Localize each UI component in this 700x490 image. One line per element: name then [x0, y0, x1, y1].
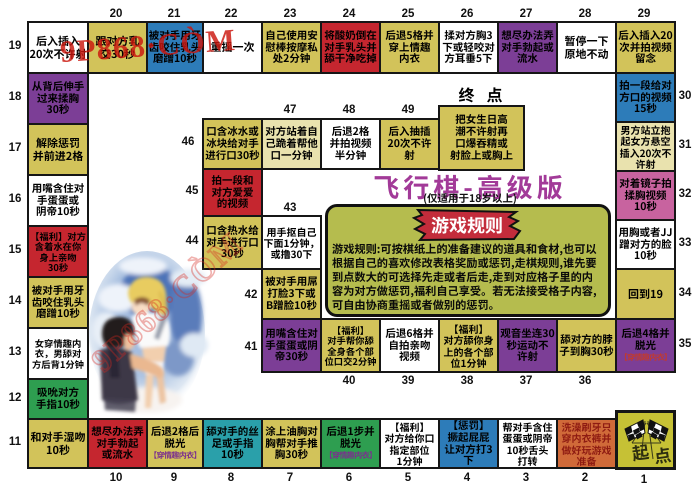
- svg-text:游戏规则: 游戏规则: [431, 212, 503, 238]
- svg-text:点: 点: [652, 441, 672, 467]
- svg-text:起: 起: [630, 438, 650, 465]
